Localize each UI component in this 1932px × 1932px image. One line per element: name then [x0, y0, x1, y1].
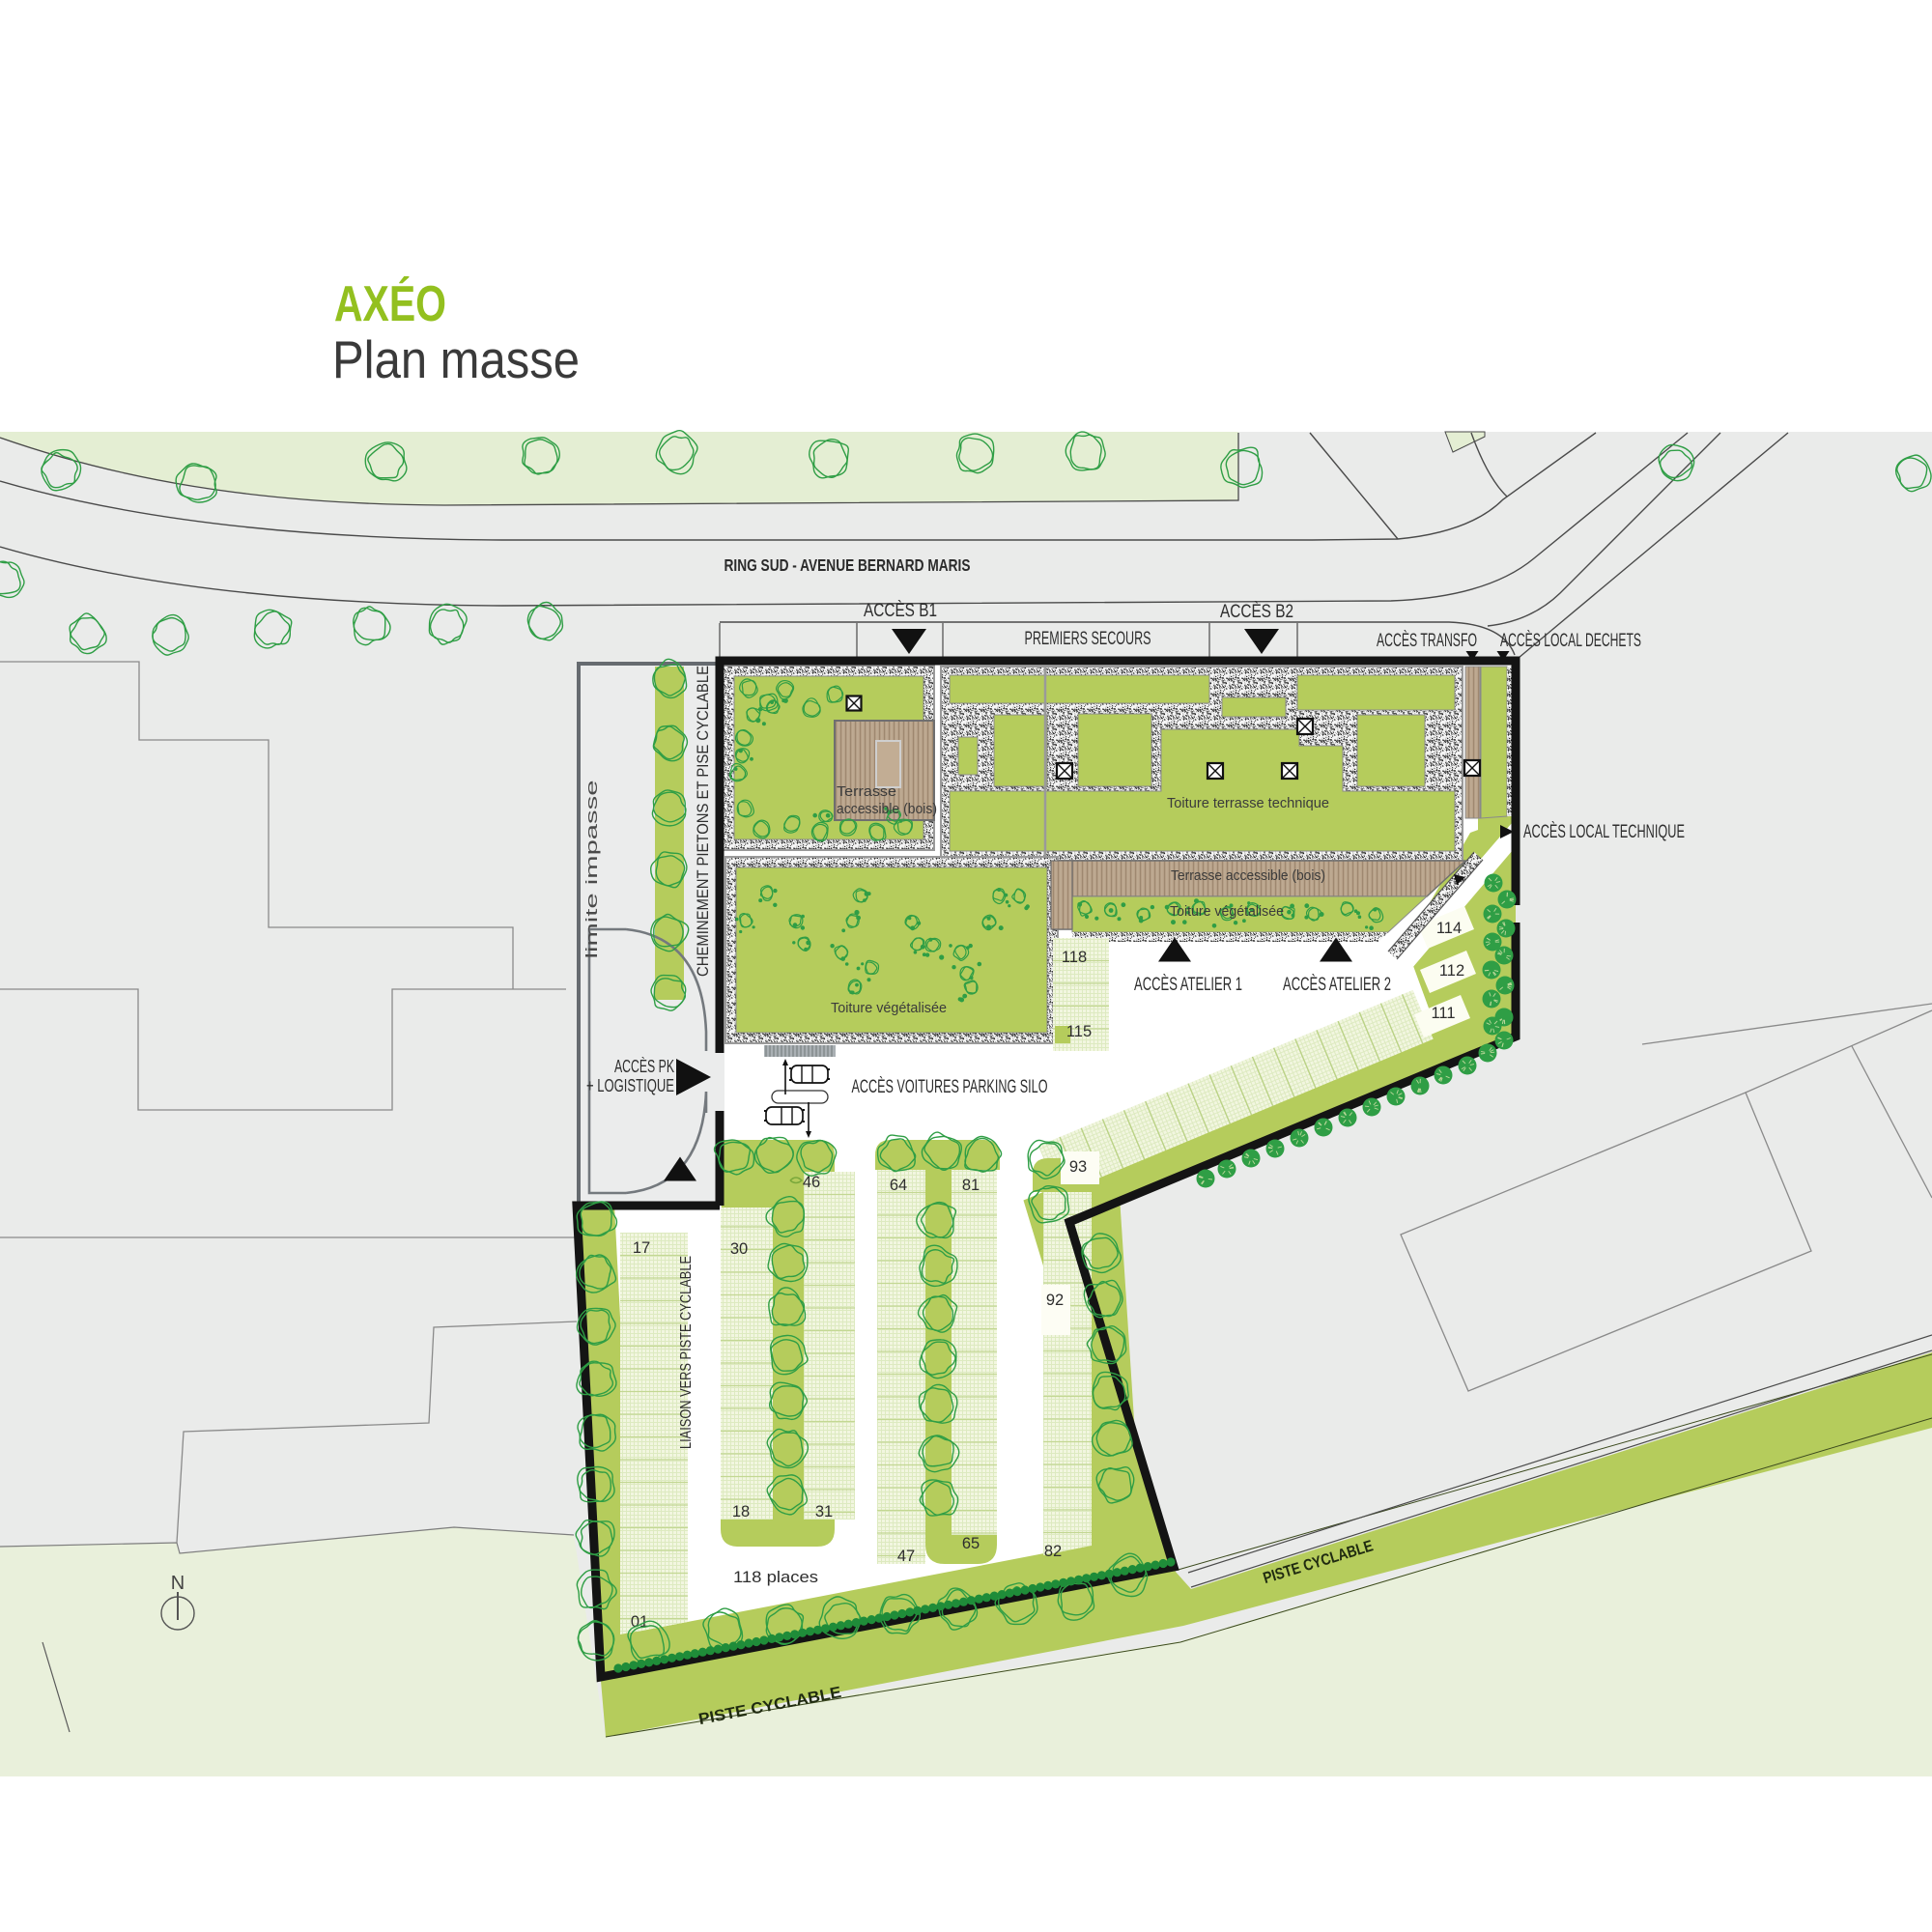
svg-text:114: 114: [1436, 920, 1462, 937]
svg-text:ACCÈS ATELIER 2: ACCÈS ATELIER 2: [1283, 975, 1391, 995]
svg-text:ACCÈS B2: ACCÈS B2: [1220, 602, 1293, 622]
svg-text:ACCÈS B1: ACCÈS B1: [864, 601, 937, 621]
svg-text:111: 111: [1431, 1005, 1455, 1022]
svg-text:Toiture végétalisée: Toiture végétalisée: [831, 1000, 947, 1016]
svg-text:31: 31: [815, 1503, 833, 1520]
svg-text:18: 18: [732, 1503, 750, 1520]
svg-text:ACCÈS PK: ACCÈS PK: [614, 1057, 674, 1076]
svg-text:Toiture végétalisée: Toiture végétalisée: [1170, 903, 1284, 920]
svg-text:AXÉO: AXÉO: [334, 276, 446, 332]
svg-text:30: 30: [730, 1240, 748, 1258]
svg-text:limite impasse: limite impasse: [582, 781, 601, 959]
svg-text:LIAISON VERS PISTE CYCLABLE: LIAISON VERS PISTE CYCLABLE: [678, 1256, 695, 1449]
svg-text:118: 118: [1062, 949, 1087, 966]
svg-text:CHEMINEMENT PIETONS ET PISE CY: CHEMINEMENT PIETONS ET PISE CYCLABLE: [695, 666, 712, 977]
svg-text:Terrasse accessible (bois): Terrasse accessible (bois): [1171, 867, 1325, 884]
svg-text:115: 115: [1066, 1023, 1092, 1040]
svg-text:N: N: [171, 1573, 185, 1594]
svg-text:PREMIERS SECOURS: PREMIERS SECOURS: [1025, 629, 1151, 649]
svg-text:ACCÈS LOCAL TECHNIQUE: ACCÈS LOCAL TECHNIQUE: [1523, 822, 1685, 842]
svg-text:ACCÈS ATELIER 1: ACCÈS ATELIER 1: [1134, 975, 1242, 995]
svg-text:ACCÈS TRANSFO: ACCÈS TRANSFO: [1377, 631, 1477, 651]
svg-text:RING SUD - AVENUE BERNARD MARI: RING SUD - AVENUE BERNARD MARIS: [724, 555, 971, 575]
svg-text:92: 92: [1046, 1292, 1064, 1309]
svg-text:accessible (bois): accessible (bois): [837, 801, 937, 817]
svg-text:64: 64: [890, 1177, 907, 1194]
svg-text:Plan masse: Plan masse: [332, 329, 580, 389]
svg-text:ACCÈS VOITURES PARKING SILO: ACCÈS VOITURES PARKING SILO: [852, 1077, 1048, 1097]
svg-text:82: 82: [1044, 1543, 1062, 1560]
svg-text:+ LOGISTIQUE: + LOGISTIQUE: [586, 1076, 674, 1095]
svg-text:112: 112: [1439, 962, 1464, 980]
svg-text:17: 17: [633, 1239, 650, 1257]
svg-text:Terrasse: Terrasse: [837, 783, 896, 800]
svg-text:Toiture terrasse technique: Toiture terrasse technique: [1167, 795, 1329, 811]
svg-text:118 places: 118 places: [733, 1568, 818, 1586]
svg-text:65: 65: [962, 1535, 980, 1552]
svg-text:ACCÈS LOCAL DECHETS: ACCÈS LOCAL DECHETS: [1500, 631, 1641, 651]
svg-text:93: 93: [1069, 1158, 1087, 1176]
svg-text:47: 47: [897, 1548, 915, 1565]
svg-text:81: 81: [962, 1177, 980, 1194]
